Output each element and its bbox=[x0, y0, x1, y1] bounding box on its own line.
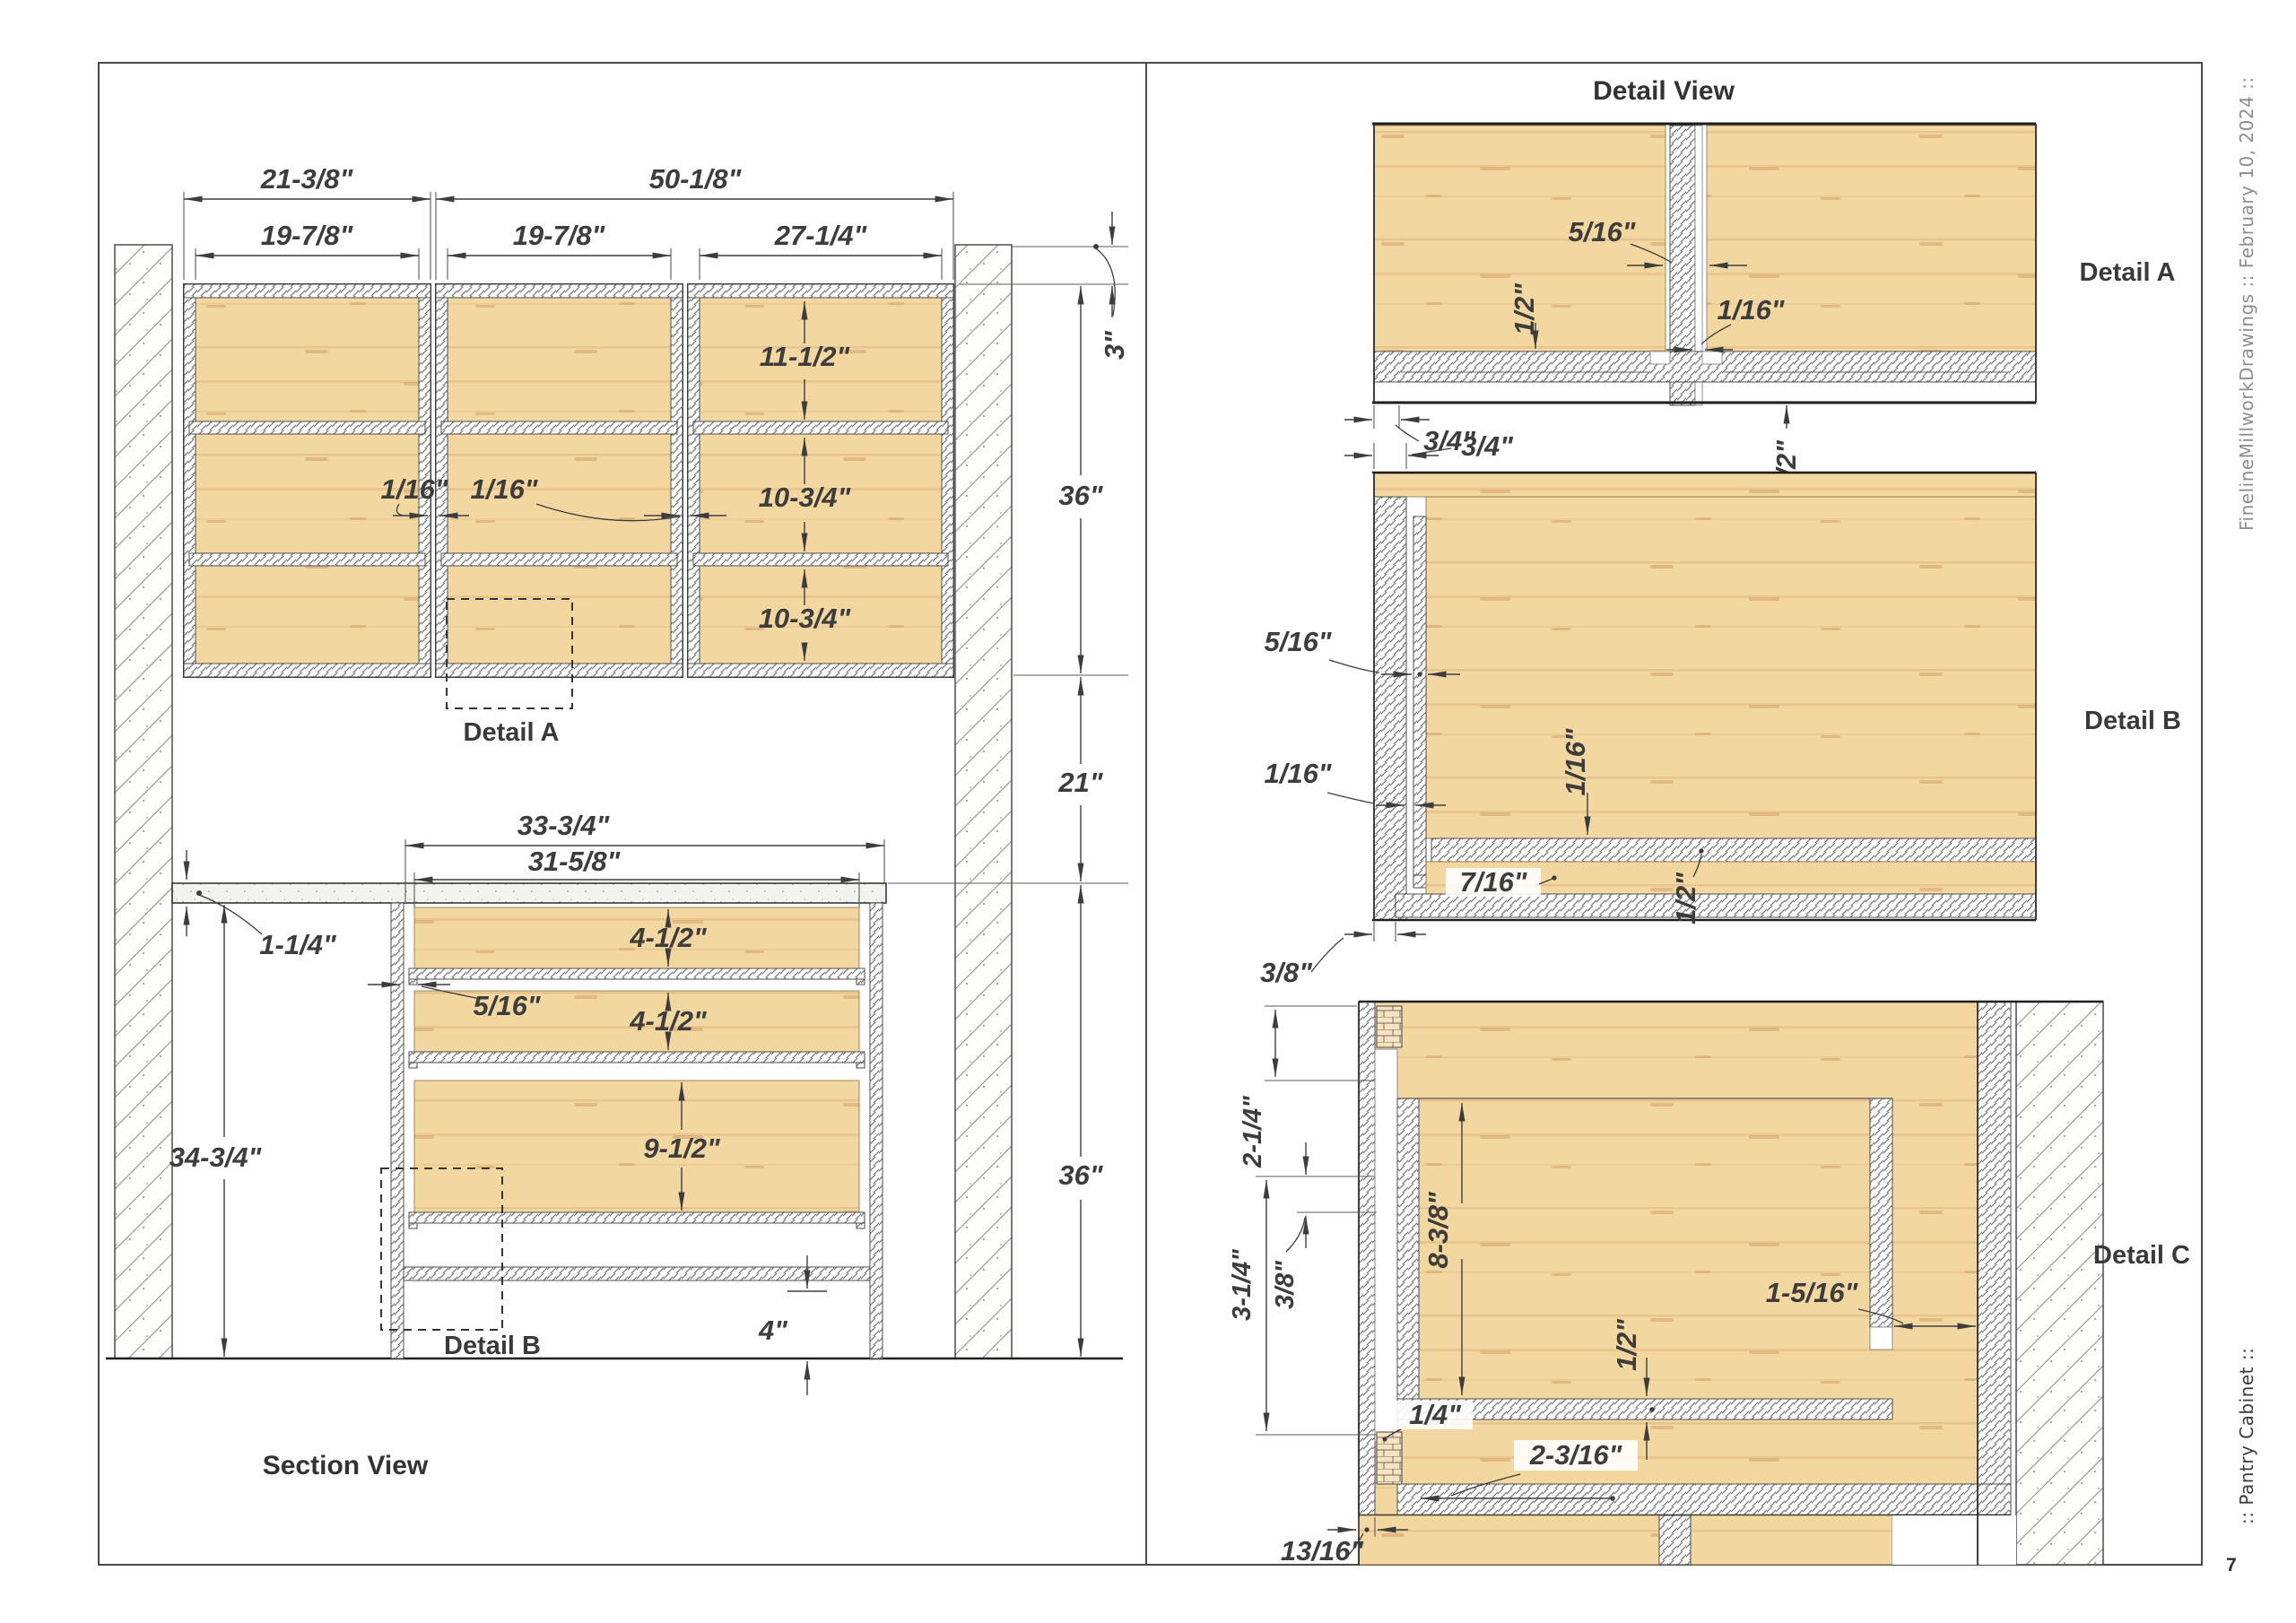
dim-shelf1: 11-1/2" bbox=[760, 341, 851, 372]
dim-counter-depth: 33-3/4" bbox=[517, 810, 611, 841]
detail-c: 2-1/4" 3-1/4" 3/8" 8-3/8" 1/2" 1-5/16" 1… bbox=[1228, 1002, 2190, 1567]
dim-counter-thickness: 1-1/4" bbox=[259, 929, 337, 960]
dim-box3-width: 27-1/4" bbox=[774, 220, 868, 251]
dim-drawer2: 4-1/2" bbox=[629, 1005, 708, 1037]
dim-upper-height: 36" bbox=[1058, 480, 1103, 511]
dim-b-strip: 7/16" bbox=[1459, 866, 1527, 898]
detail-view-title: Detail View bbox=[1593, 76, 1735, 106]
page-number: 7 bbox=[2226, 1555, 2237, 1575]
dim-gap-height: 21" bbox=[1057, 767, 1103, 798]
dim-gap2: 1/16" bbox=[470, 473, 538, 505]
dim-shelf3: 10-3/4" bbox=[759, 603, 852, 634]
dim-c-clear: 1-5/16" bbox=[1766, 1277, 1859, 1308]
detail-a-callout-label: Detail A bbox=[464, 718, 560, 747]
dim-a-divider: 5/16" bbox=[1568, 216, 1636, 247]
dim-toe-kick: 4" bbox=[758, 1315, 788, 1346]
dim-left-width: 21-3/8" bbox=[260, 163, 354, 195]
dim-b-panel: 3/4" bbox=[1461, 430, 1514, 462]
millwork-drawing: FinelineMillworkDrawings :: February 10,… bbox=[0, 0, 2296, 1623]
dim-c-offset: 3/8" bbox=[1271, 1260, 1300, 1309]
dim-c-shelf: 1/2" bbox=[1611, 1318, 1642, 1371]
dim-base-height: 36" bbox=[1058, 1159, 1103, 1191]
detail-b-callout-label: Detail B bbox=[444, 1332, 541, 1360]
dim-counter-height: 34-3/4" bbox=[170, 1141, 263, 1173]
dim-b-gap-left: 1/16" bbox=[1264, 758, 1332, 789]
dim-b-gap-mid: 1/16" bbox=[1560, 727, 1591, 795]
dim-c-interior: 8-3/8" bbox=[1422, 1191, 1454, 1269]
dim-c-face: 13/16" bbox=[1281, 1535, 1365, 1567]
shelf-height-dims: 11-1/2" 10-3/4" 10-3/4" bbox=[759, 301, 852, 661]
countertop bbox=[172, 883, 886, 903]
dim-gap1: 1/16" bbox=[380, 473, 448, 505]
left-wall bbox=[115, 245, 172, 1358]
dim-b-step: 3/8" bbox=[1260, 957, 1313, 988]
dim-box2-width: 19-7/8" bbox=[513, 220, 606, 251]
section-view-title: Section View bbox=[263, 1451, 429, 1480]
credit-note: FinelineMillworkDrawings :: February 10,… bbox=[2236, 76, 2257, 531]
dim-c-side: 3-1/4" bbox=[1228, 1248, 1257, 1321]
dim-a-gap: 1/16" bbox=[1717, 294, 1785, 325]
drawing-sheet: FinelineMillworkDrawings :: February 10,… bbox=[0, 0, 2296, 1623]
dim-drawer-width: 31-5/8" bbox=[528, 846, 622, 877]
dim-right-width: 50-1/8" bbox=[649, 163, 743, 195]
dim-soffit: 3" bbox=[1099, 330, 1130, 360]
dim-c-top: 2-1/4" bbox=[1239, 1095, 1267, 1168]
detail-a-caption: Detail A bbox=[2080, 258, 2176, 287]
dim-drawer3: 9-1/2" bbox=[643, 1133, 721, 1164]
right-wall bbox=[955, 245, 1012, 1358]
detail-c-caption: Detail C bbox=[2093, 1241, 2190, 1270]
dim-box1-width: 19-7/8" bbox=[261, 220, 354, 251]
dim-c-depth: 2-3/16" bbox=[1529, 1439, 1623, 1471]
dim-c-slide: 1/4" bbox=[1409, 1399, 1462, 1430]
detail-b-caption: Detail B bbox=[2084, 707, 2181, 735]
project-note: :: Pantry Cabinet :: bbox=[2236, 1348, 2257, 1524]
dim-drawer-gap: 5/16" bbox=[473, 990, 541, 1021]
dim-drawer1: 4-1/2" bbox=[629, 922, 708, 953]
dim-b-shelf: 1/2" bbox=[1670, 872, 1701, 924]
dim-shelf2: 10-3/4" bbox=[759, 482, 852, 513]
dim-b-inner: 5/16" bbox=[1264, 626, 1332, 657]
